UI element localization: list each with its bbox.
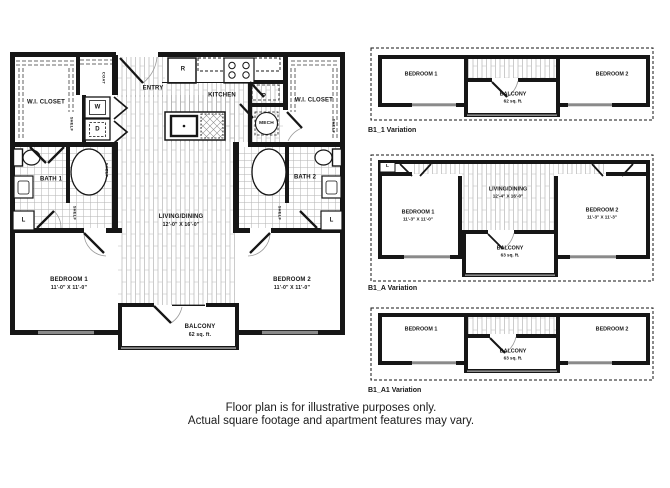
balcony-rail-line [465, 275, 555, 276]
label-shelf: SHELF [332, 119, 337, 134]
room-dims: 11'-0" X 11'-0" [273, 285, 311, 292]
bath2-tub [252, 149, 286, 195]
bedroom1-window [38, 331, 94, 334]
bedroom2-window [568, 103, 612, 106]
room-dims: 11'-3" X 11'-0" [402, 217, 435, 223]
room-name: BALCONY [500, 92, 527, 99]
room-dims: 11'-3" X 11'-3" [586, 215, 619, 221]
disclaimer-line-2: Actual square footage and apartment feat… [0, 415, 662, 427]
label-v3-balcony: BALCONY 63 sq. ft. [500, 349, 527, 362]
label-washer: W [95, 104, 101, 112]
label-dryer: D [95, 126, 99, 134]
room-name: BEDROOM 1 [50, 277, 88, 285]
label-linen-right: L [330, 217, 334, 225]
room-name: LIVING/DINING [489, 187, 527, 194]
room-name: BEDROOM 2 [586, 208, 619, 215]
corridor-floor [412, 164, 462, 174]
bedroom1-window [412, 103, 456, 106]
label-v2-living: LIVING/DINING 12'-4" X 16'-0" [489, 187, 527, 200]
variation-b1-a1-title: B1_A1 Variation [368, 387, 421, 394]
label-coat: COAT [102, 72, 107, 84]
bedroom2-window [570, 255, 616, 258]
sliding-door [172, 305, 205, 306]
room-dims: 12'-4" X 16'-0" [489, 194, 527, 200]
label-bath2: BATH 2 [294, 174, 316, 182]
label-shelf: SHELF [73, 206, 78, 221]
bedroom2-window [262, 331, 318, 334]
label-pantry: P [262, 93, 266, 101]
room-name: LIVING/DINING [159, 214, 204, 222]
corridor-floor [556, 164, 606, 174]
label-entry: ENTRY [143, 85, 164, 93]
room-area: 63 sq. ft. [500, 356, 527, 362]
living-floor-strip [468, 58, 556, 78]
label-linen-left: L [22, 217, 26, 225]
stove [224, 58, 254, 83]
kitchen-island [165, 112, 225, 140]
room-name: BALCONY [185, 324, 216, 332]
windows [38, 331, 318, 334]
bedroom1-window [412, 361, 456, 364]
label-bedroom1: BEDROOM 1 11'-0" X 11'-0" [50, 277, 88, 291]
room-area: 62 sq. ft. [500, 99, 527, 105]
label-refrigerator: R [181, 66, 185, 74]
bedroom2-window [568, 361, 612, 364]
label-kitchen: KITCHEN [208, 92, 236, 100]
label-balcony: BALCONY 62 sq. ft. [185, 324, 216, 338]
label-bedroom2: BEDROOM 2 11'-0" X 11'-0" [273, 277, 311, 291]
bath2-sink [322, 176, 341, 198]
label-v2-bedroom1: BEDROOM 1 11'-3" X 11'-0" [402, 210, 435, 223]
label-wi-closet-left: W.I. CLOSET [24, 99, 68, 107]
label-v1-bedroom2: BEDROOM 2 [596, 71, 629, 78]
label-shelf: SHELF [278, 206, 283, 221]
label-v1-balcony: BALCONY 62 sq. ft. [500, 92, 527, 105]
variation-b1-1-title: B1_1 Variation [368, 127, 416, 134]
balcony-rail-line [467, 115, 557, 116]
bath1-tub [71, 149, 107, 195]
label-shelf: SHELF [105, 163, 110, 178]
room-dims: 11'-0" X 11'-0" [50, 285, 88, 292]
variation-b1-a1-plan [371, 308, 653, 380]
label-v2-linen: L [386, 164, 389, 170]
label-bath1: BATH 1 [40, 176, 62, 184]
upper-cabinet [198, 58, 224, 71]
bath1-sink [14, 176, 33, 198]
label-shelf: SHELF [70, 117, 75, 132]
label-wi-closet-right: W.I. CLOSET [292, 97, 336, 105]
bedroom1-window [404, 255, 450, 258]
room-name: BALCONY [497, 246, 524, 253]
label-mech: MECH [259, 121, 274, 127]
room-name: BEDROOM 1 [402, 210, 435, 217]
living-floor-strip [468, 317, 556, 334]
upper-cabinet [254, 58, 280, 71]
label-v3-bedroom2: BEDROOM 2 [596, 326, 629, 333]
room-area: 63 sq. ft. [497, 253, 524, 259]
variation-b1-a-title: B1_A Variation [368, 285, 417, 292]
room-area: 62 sq. ft. [185, 332, 216, 339]
label-living-dining: LIVING/DINING 12'-0" X 16'-0" [159, 214, 204, 228]
balcony-rail-line [121, 348, 236, 349]
room-name: BALCONY [500, 349, 527, 356]
bath2-toilet [315, 149, 342, 166]
disclaimer-line-1: Floor plan is for illustrative purposes … [0, 402, 662, 414]
room-dims: 12'-0" X 16'-0" [159, 222, 204, 229]
balcony-rail-line [467, 371, 557, 372]
label-v2-bedroom2: BEDROOM 2 11'-3" X 11'-3" [586, 208, 619, 221]
room-name: BEDROOM 2 [273, 277, 311, 285]
variation-b1-1-plan [371, 48, 653, 120]
label-v2-balcony: BALCONY 63 sq. ft. [497, 246, 524, 259]
label-v1-bedroom1: BEDROOM 1 [405, 71, 438, 78]
label-v3-bedroom1: BEDROOM 1 [405, 326, 438, 333]
floor-plan-page: W.I. CLOSET COAT SHELF W D ENTRY R KITCH… [0, 0, 670, 488]
